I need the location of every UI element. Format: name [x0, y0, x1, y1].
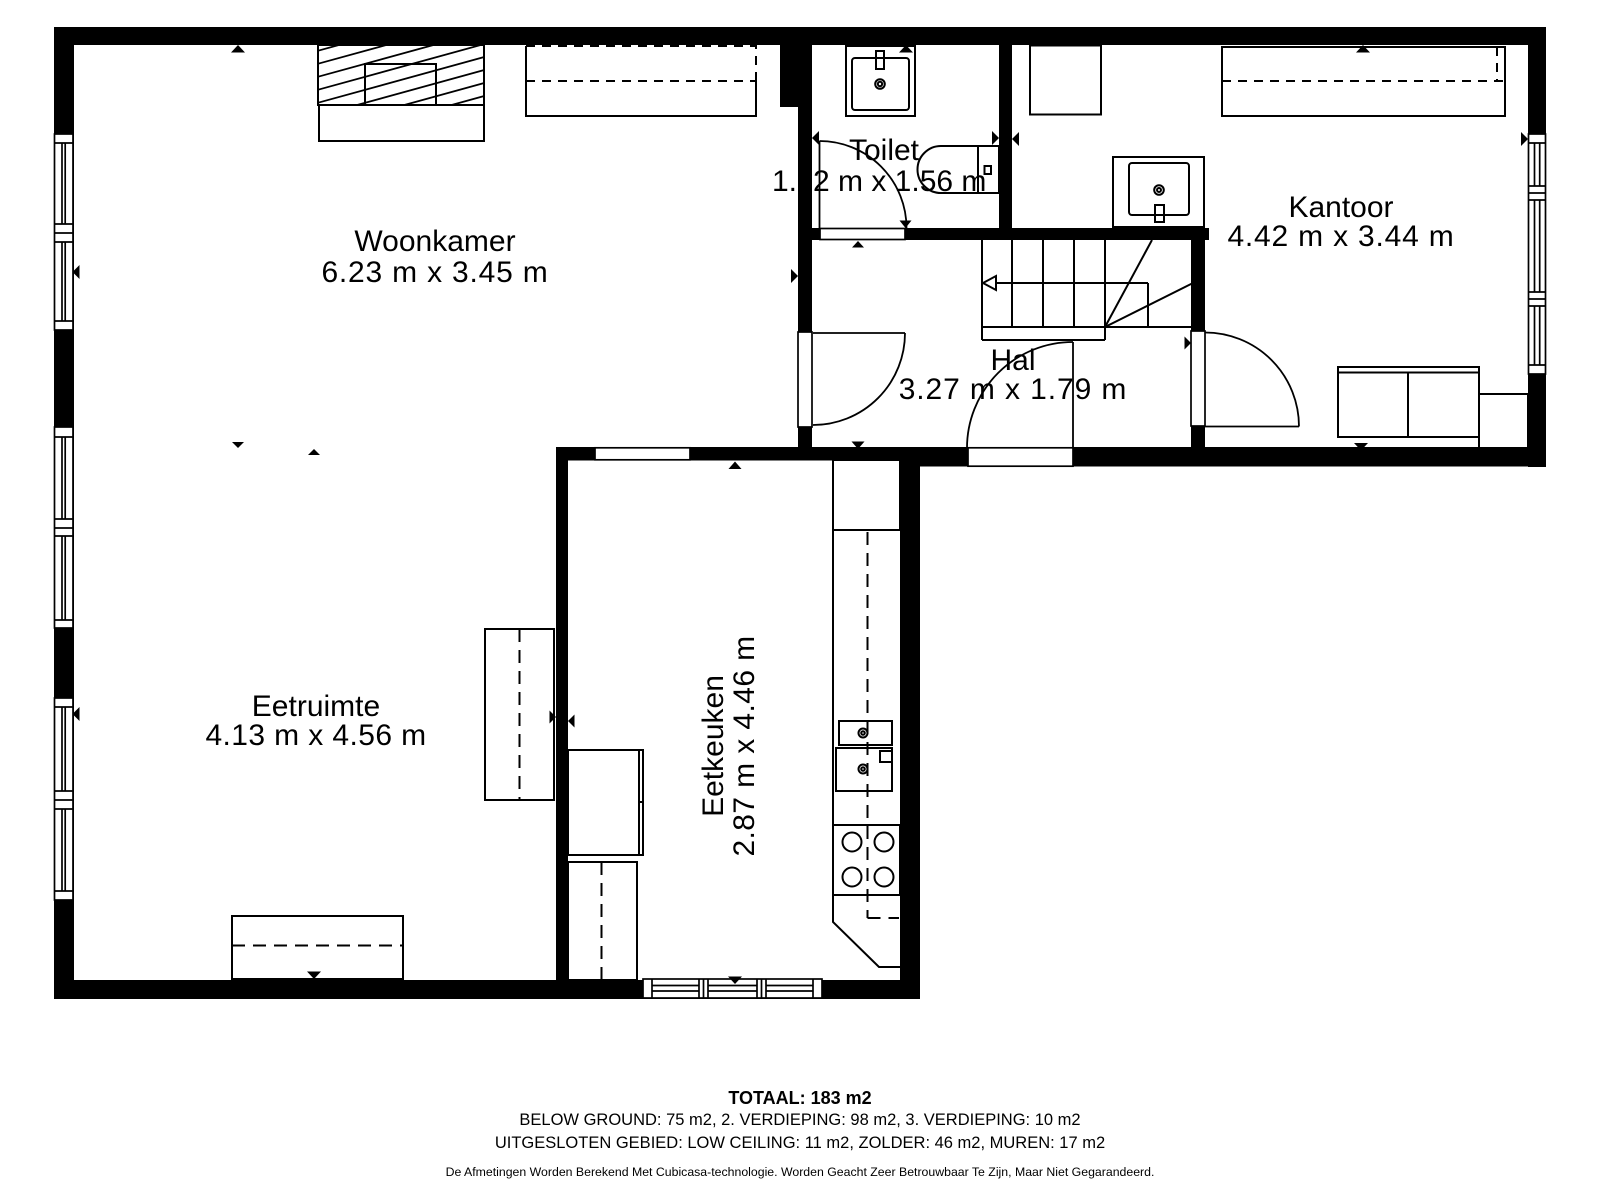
svg-text:3.27 m x 1.79 m: 3.27 m x 1.79 m: [899, 373, 1128, 406]
svg-text:BELOW GROUND: 75 m2, 2. VERDIE: BELOW GROUND: 75 m2, 2. VERDIEPING: 98 m…: [519, 1111, 1080, 1129]
svg-text:4.13 m x 4.56 m: 4.13 m x 4.56 m: [205, 719, 426, 752]
svg-text:Toilet: Toilet: [849, 134, 920, 167]
svg-text:De Afmetingen Worden Berekend: De Afmetingen Worden Berekend Met Cubica…: [446, 1165, 1155, 1179]
svg-text:Woonkamer: Woonkamer: [354, 225, 515, 258]
svg-text:TOTAAL: 183 m2: TOTAAL: 183 m2: [728, 1088, 871, 1108]
svg-text:4.42 m x 3.44 m: 4.42 m x 3.44 m: [1227, 220, 1454, 253]
svg-text:Eetkeuken: Eetkeuken: [697, 675, 730, 817]
svg-text:1.: 1.: [772, 165, 797, 198]
svg-text:2 m x 1.56 m: 2 m x 1.56 m: [813, 165, 986, 198]
svg-text:6.23 m x 3.45 m: 6.23 m x 3.45 m: [321, 256, 548, 289]
svg-text:UITGESLOTEN GEBIED: LOW CEILIN: UITGESLOTEN GEBIED: LOW CEILING: 11 m2, …: [495, 1134, 1105, 1152]
svg-text:2.87 m x 4.46 m: 2.87 m x 4.46 m: [728, 635, 761, 856]
